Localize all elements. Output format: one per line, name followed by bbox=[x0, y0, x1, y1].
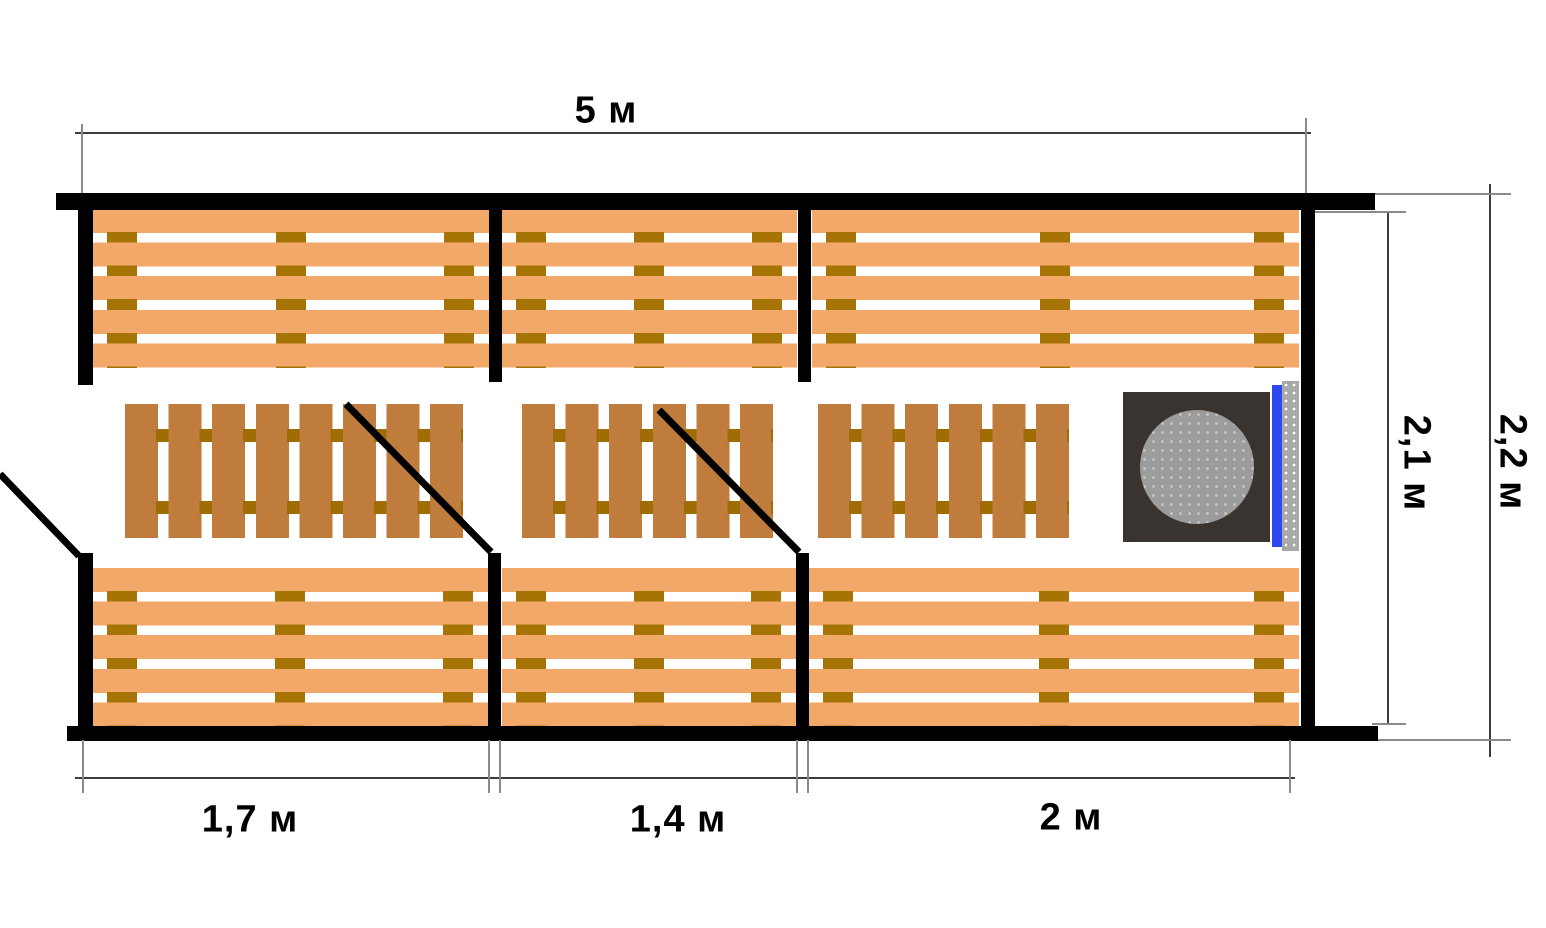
wall-left-lower bbox=[78, 553, 93, 726]
dimension-label-total-width: 5 м bbox=[575, 90, 638, 133]
duckboard-connector-row bbox=[125, 501, 463, 514]
duckboard-connector-row bbox=[818, 501, 1069, 514]
dimension-label-inner-height: 2,1 м bbox=[1395, 415, 1438, 512]
bench-cleat bbox=[1254, 209, 1284, 368]
bench-cleat bbox=[275, 568, 305, 726]
bench-cleat bbox=[276, 209, 306, 368]
bench-cleat bbox=[752, 209, 782, 368]
wall-bottom bbox=[67, 726, 1378, 741]
duckboard-connector-row bbox=[522, 429, 773, 442]
bench-cleat bbox=[443, 568, 473, 726]
duckboard-room2 bbox=[522, 404, 773, 538]
wall-right bbox=[1301, 210, 1315, 726]
bench-top-room1 bbox=[93, 209, 489, 368]
entry-door-swing-line bbox=[0, 474, 79, 556]
bench-bottom-room3 bbox=[809, 568, 1299, 726]
dimension-label-room2-width: 1,4 м bbox=[630, 799, 727, 842]
stove-protective-screen bbox=[1282, 381, 1299, 551]
bench-cleat bbox=[826, 209, 856, 368]
bench-top-room3 bbox=[812, 209, 1299, 368]
bench-bottom-room1 bbox=[93, 568, 488, 726]
duckboard-room3 bbox=[818, 404, 1069, 538]
duckboard-connector-row bbox=[522, 501, 773, 514]
stove-heat-shield bbox=[1272, 385, 1282, 547]
duckboard-connector-row bbox=[125, 429, 463, 442]
bench-top-room2 bbox=[502, 209, 797, 368]
dimension-label-outer-height: 2,2 м bbox=[1491, 414, 1534, 511]
bench-bottom-room2 bbox=[502, 568, 796, 726]
partition-2-upper bbox=[798, 210, 811, 382]
stove-stones-icon bbox=[1140, 410, 1254, 524]
wall-top bbox=[56, 193, 1375, 210]
sauna-floor-plan: 5 м 1,7 м 1,4 м 2 м 2,1 м 2,2 м bbox=[0, 0, 1546, 928]
stove bbox=[1123, 392, 1270, 542]
bench-cleat bbox=[823, 568, 853, 726]
bench-cleat bbox=[516, 568, 546, 726]
bench-cleat bbox=[634, 209, 664, 368]
bench-cleat bbox=[107, 568, 137, 726]
partition-2-lower bbox=[796, 553, 809, 726]
duckboard-connector-row bbox=[818, 429, 1069, 442]
dimension-label-room3-width: 2 м bbox=[1040, 797, 1103, 840]
duckboard-room1 bbox=[125, 404, 463, 538]
bench-cleat bbox=[107, 209, 137, 368]
bench-cleat bbox=[516, 209, 546, 368]
wall-left-upper bbox=[78, 210, 93, 385]
bench-cleat bbox=[751, 568, 781, 726]
partition-1-lower bbox=[488, 553, 501, 726]
bench-cleat bbox=[1040, 209, 1070, 368]
bench-cleat bbox=[1039, 568, 1069, 726]
bench-cleat bbox=[1254, 568, 1284, 726]
dimension-label-room1-width: 1,7 м bbox=[202, 799, 299, 842]
bench-cleat bbox=[444, 209, 474, 368]
bench-cleat bbox=[634, 568, 664, 726]
partition-1-upper bbox=[489, 210, 502, 382]
